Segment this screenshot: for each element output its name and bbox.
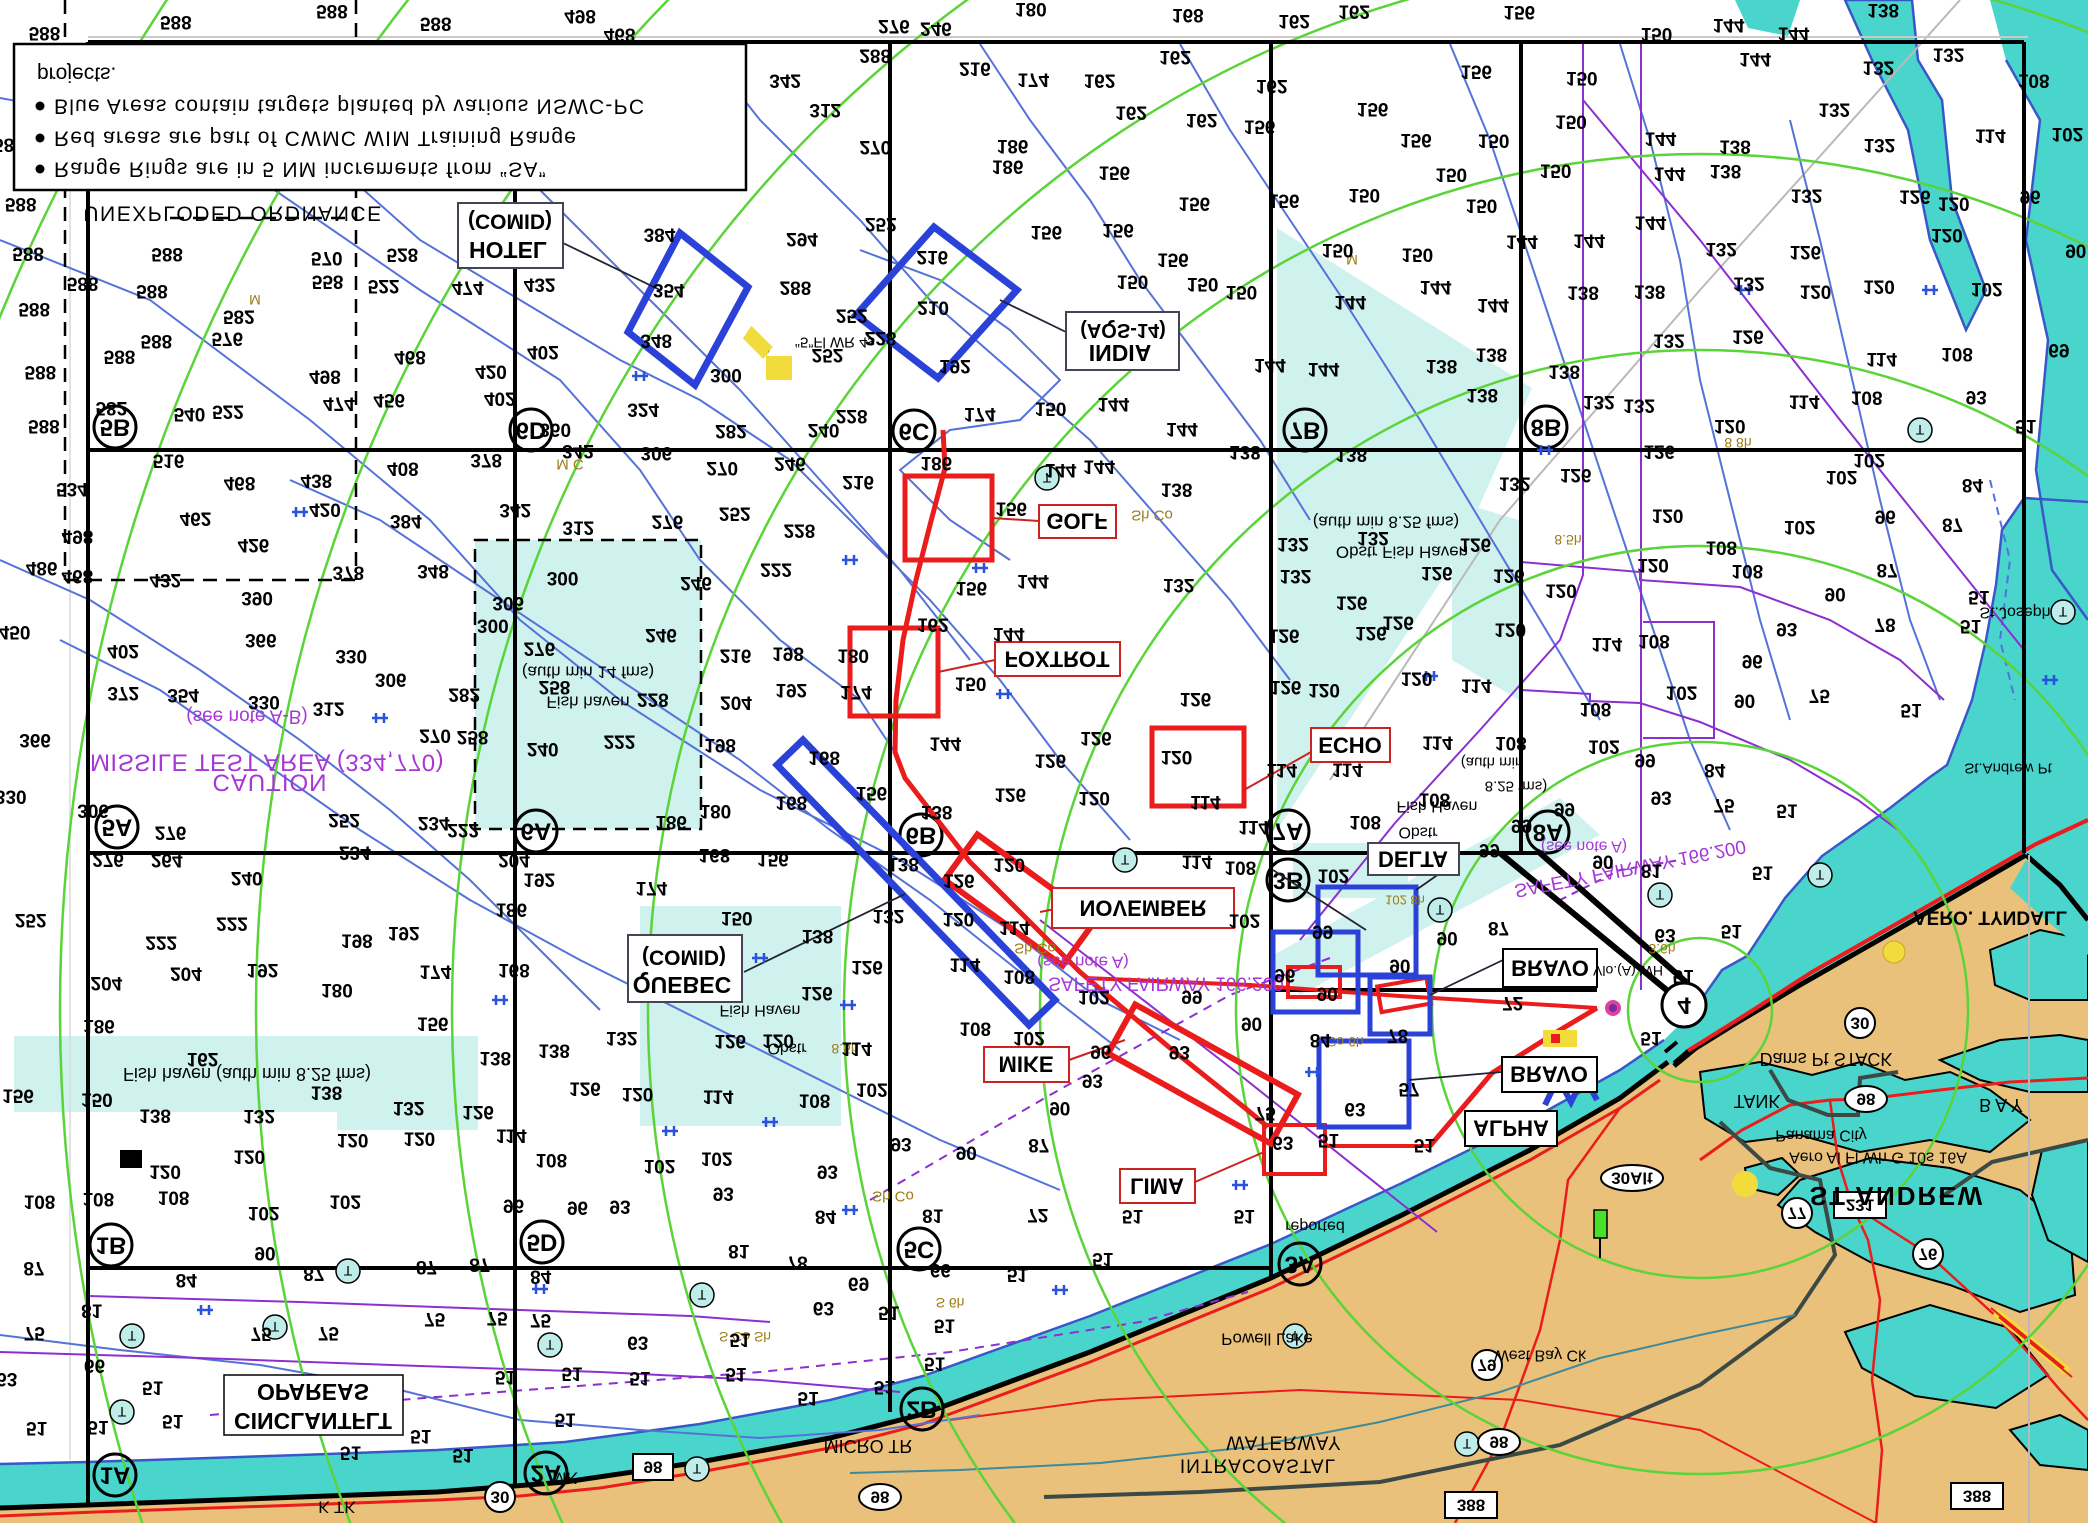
svg-text:432: 432 [149, 569, 181, 590]
svg-text:588: 588 [29, 22, 61, 43]
svg-text:174: 174 [420, 961, 452, 982]
svg-text:93: 93 [890, 1133, 911, 1154]
svg-text:456: 456 [373, 389, 405, 410]
svg-text:306: 306 [77, 800, 109, 821]
svg-text:114: 114 [999, 917, 1030, 938]
svg-text:90: 90 [1049, 1097, 1070, 1118]
svg-text:6A: 6A [521, 818, 552, 845]
svg-text:180: 180 [837, 645, 869, 666]
svg-text:WATERWAY: WATERWAY [1226, 1432, 1341, 1453]
svg-text:Co 6h: Co 6h [1326, 1034, 1363, 1050]
svg-text:90: 90 [1389, 955, 1410, 976]
svg-text:330: 330 [335, 645, 367, 666]
svg-text:138: 138 [311, 1081, 343, 1102]
svg-text:96: 96 [567, 1197, 588, 1218]
svg-text:498: 498 [309, 365, 341, 386]
svg-text:St.Andrew Pt: St.Andrew Pt [1964, 760, 2052, 777]
svg-text:168: 168 [1172, 4, 1204, 25]
svg-text:384: 384 [644, 223, 676, 244]
svg-text:366: 366 [19, 729, 51, 750]
svg-text:reported: reported [1285, 1218, 1345, 1235]
svg-text:150: 150 [1117, 271, 1149, 292]
svg-text:108: 108 [2018, 70, 2050, 91]
svg-text:93: 93 [609, 1195, 630, 1216]
svg-text:(COMID): (COMID) [642, 946, 726, 969]
svg-text:144: 144 [1045, 459, 1077, 480]
svg-text:81: 81 [922, 1204, 944, 1225]
svg-text:MICRO TR: MICRO TR [824, 1436, 913, 1456]
svg-text:75: 75 [530, 1309, 552, 1330]
svg-text:144: 144 [1166, 418, 1198, 439]
svg-text:51: 51 [162, 1410, 184, 1431]
svg-text:78: 78 [787, 1252, 808, 1273]
svg-text:198: 198 [704, 734, 736, 755]
svg-text:378: 378 [470, 449, 502, 470]
svg-text:276: 276 [155, 821, 187, 842]
svg-text:342: 342 [562, 440, 594, 461]
svg-text:St.Joseph: St.Joseph [1979, 604, 2050, 621]
svg-text:102: 102 [1229, 909, 1261, 930]
svg-text:120: 120 [993, 853, 1025, 874]
svg-text:126: 126 [1080, 727, 1112, 748]
svg-text:126: 126 [851, 956, 883, 977]
svg-text:30: 30 [491, 1488, 510, 1507]
svg-text:138: 138 [1476, 343, 1508, 364]
svg-text:84: 84 [815, 1206, 837, 1227]
svg-text:84: 84 [176, 1269, 198, 1290]
svg-text:132: 132 [1623, 394, 1655, 415]
svg-text:108: 108 [1225, 857, 1257, 878]
svg-text:Sh Co: Sh Co [1014, 940, 1056, 957]
svg-text:186: 186 [992, 155, 1024, 176]
svg-text:186: 186 [83, 1015, 115, 1036]
svg-text:156: 156 [856, 782, 888, 803]
svg-text:51: 51 [874, 1376, 896, 1397]
svg-text:276: 276 [652, 510, 684, 531]
svg-text:156: 156 [1357, 98, 1389, 119]
svg-text:75: 75 [1713, 794, 1735, 815]
svg-text:438: 438 [301, 470, 333, 491]
svg-text:126: 126 [569, 1078, 601, 1099]
svg-text:BRAVO: BRAVO [1510, 1062, 1588, 1087]
svg-text:Obstr: Obstr [1398, 824, 1438, 841]
svg-text:198: 198 [341, 929, 373, 950]
svg-text:99: 99 [1312, 920, 1333, 941]
svg-text:306: 306 [641, 442, 673, 463]
svg-text:120: 120 [149, 1161, 181, 1182]
svg-text:132: 132 [1653, 329, 1685, 350]
svg-text:570: 570 [311, 247, 343, 268]
svg-text:150: 150 [721, 907, 753, 928]
svg-text:132: 132 [1280, 565, 1312, 586]
svg-text:120: 120 [1863, 275, 1895, 296]
svg-text:MIKE: MIKE [999, 1052, 1054, 1077]
svg-text:30: 30 [1851, 1014, 1870, 1033]
svg-text:84: 84 [530, 1265, 552, 1286]
svg-text:81: 81 [728, 1240, 750, 1261]
svg-text:96: 96 [1742, 650, 1763, 671]
svg-text:120: 120 [1800, 280, 1832, 301]
svg-text:378: 378 [332, 562, 364, 583]
svg-text:96: 96 [503, 1195, 524, 1216]
svg-text:126: 126 [1421, 562, 1453, 583]
svg-text:108: 108 [158, 1187, 190, 1208]
svg-text:522: 522 [368, 275, 400, 296]
svg-text:120: 120 [1714, 415, 1746, 436]
svg-text:108: 108 [959, 1018, 991, 1039]
svg-text:156: 156 [1030, 221, 1062, 242]
svg-text:138: 138 [887, 853, 919, 874]
svg-text:51: 51 [452, 1444, 474, 1465]
svg-text:294: 294 [786, 228, 818, 249]
svg-text:192: 192 [247, 959, 279, 980]
svg-text:388: 388 [1457, 1496, 1485, 1515]
svg-text:252: 252 [719, 503, 751, 524]
svg-text:114: 114 [1789, 391, 1820, 412]
svg-text:222: 222 [216, 912, 248, 933]
svg-text:156: 156 [1268, 189, 1300, 210]
svg-text:75: 75 [24, 1322, 46, 1343]
svg-text:102: 102 [1784, 516, 1816, 537]
svg-text:588: 588 [18, 298, 50, 319]
svg-text:126: 126 [1035, 750, 1067, 771]
svg-text:87: 87 [1942, 513, 1963, 534]
svg-text:93: 93 [713, 1183, 734, 1204]
svg-text:87: 87 [23, 1257, 44, 1278]
svg-text:T: T [344, 1263, 353, 1279]
svg-text:588: 588 [28, 415, 60, 436]
svg-text:96: 96 [2020, 186, 2041, 207]
svg-text:216: 216 [842, 471, 874, 492]
svg-text:(see note A): (see note A) [1541, 838, 1627, 855]
svg-text:102: 102 [1666, 682, 1698, 703]
svg-text:132: 132 [1818, 99, 1850, 120]
svg-text:252: 252 [865, 213, 897, 234]
svg-text:222: 222 [447, 819, 479, 840]
svg-text:87: 87 [303, 1262, 324, 1283]
svg-text:150: 150 [955, 673, 987, 694]
svg-text:114: 114 [1592, 633, 1623, 654]
svg-text:HOTEL: HOTEL [469, 237, 547, 263]
svg-text:114: 114 [1461, 674, 1492, 695]
svg-text:90: 90 [254, 1242, 275, 1263]
svg-text:126: 126 [1899, 186, 1931, 207]
svg-text:156: 156 [1157, 248, 1189, 269]
svg-text:150: 150 [1555, 111, 1587, 132]
svg-text:T: T [546, 1337, 555, 1353]
svg-text:198: 198 [772, 642, 804, 663]
svg-text:102: 102 [644, 1155, 676, 1176]
svg-text:72: 72 [1027, 1204, 1048, 1225]
svg-text:228: 228 [637, 688, 669, 709]
svg-text:126: 126 [1560, 464, 1592, 485]
svg-text:Sh Co: Sh Co [1131, 507, 1173, 524]
svg-text:270: 270 [419, 725, 451, 746]
svg-text:522: 522 [212, 400, 244, 421]
svg-text:51: 51 [629, 1367, 651, 1388]
svg-text:QUEBEC: QUEBEC [633, 972, 731, 998]
svg-text:102: 102 [701, 1147, 733, 1168]
svg-text:78: 78 [1875, 614, 1896, 635]
svg-text:138: 138 [1335, 443, 1367, 464]
svg-text:240: 240 [808, 419, 840, 440]
svg-text:INTRACOASTAL: INTRACOASTAL [1180, 1455, 1336, 1476]
svg-text:192: 192 [388, 922, 420, 943]
svg-text:372: 372 [107, 682, 139, 703]
svg-text:93: 93 [1651, 787, 1672, 808]
svg-text:Blue Areas contain targets pla: Blue Areas contain targets planted by va… [54, 95, 645, 118]
svg-text:108: 108 [1941, 343, 1973, 364]
svg-text:588: 588 [104, 345, 136, 366]
svg-text:162: 162 [187, 1048, 219, 1069]
svg-text:132: 132 [393, 1097, 425, 1118]
svg-text:8.25 fms): 8.25 fms) [1485, 778, 1548, 795]
svg-text:420: 420 [475, 360, 507, 381]
svg-text:63: 63 [1272, 1132, 1293, 1153]
svg-text:258: 258 [457, 726, 489, 747]
svg-text:150: 150 [1348, 184, 1380, 205]
svg-text:63: 63 [627, 1332, 648, 1353]
svg-text:(see note A-B): (see note A-B) [186, 706, 307, 727]
svg-text:288: 288 [859, 44, 891, 65]
svg-text:Aero Al Fl Wh G 10s 16A: Aero Al Fl Wh G 10s 16A [1789, 1149, 1967, 1166]
svg-text:582: 582 [223, 305, 255, 326]
svg-text:108: 108 [24, 1191, 56, 1212]
svg-text:Obstr Fish Haven: Obstr Fish Haven [1336, 543, 1468, 562]
svg-text:516: 516 [153, 449, 185, 470]
svg-text:90: 90 [1317, 982, 1338, 1003]
svg-text:258: 258 [539, 676, 571, 697]
svg-text:216: 216 [720, 645, 752, 666]
svg-text:102: 102 [1013, 1027, 1045, 1048]
svg-text:(COMID): (COMID) [468, 210, 552, 233]
svg-text:90: 90 [1734, 690, 1755, 711]
svg-text:138: 138 [479, 1047, 511, 1068]
svg-text:240: 240 [527, 738, 559, 759]
svg-text:282: 282 [715, 420, 747, 441]
svg-text:108: 108 [1419, 789, 1451, 810]
svg-text:498: 498 [564, 5, 596, 26]
svg-text:132: 132 [1163, 574, 1195, 595]
svg-text:96: 96 [1090, 1040, 1111, 1061]
svg-text:156: 156 [1179, 193, 1211, 214]
svg-text:51: 51 [934, 1314, 956, 1335]
svg-text:204: 204 [498, 849, 530, 870]
svg-text:76: 76 [1919, 1245, 1938, 1264]
svg-text:75: 75 [1809, 684, 1831, 705]
svg-text:588: 588 [136, 280, 168, 301]
svg-text:114: 114 [1238, 816, 1269, 837]
svg-text:6C: 6C [899, 418, 930, 445]
svg-text:LIMA: LIMA [1130, 1174, 1184, 1199]
svg-text:270: 270 [859, 136, 891, 157]
svg-text:51: 51 [1900, 699, 1922, 720]
svg-text:276: 276 [524, 638, 556, 659]
svg-text:144: 144 [1654, 162, 1686, 183]
svg-text:UNEXPLODED ORDNANCE: UNEXPLODED ORDNANCE [83, 202, 382, 225]
svg-text:NOVEMBER: NOVEMBER [1079, 896, 1206, 921]
svg-text:324: 324 [627, 398, 659, 419]
svg-text:474: 474 [452, 276, 484, 297]
svg-text:120: 120 [1161, 746, 1193, 767]
svg-text:81: 81 [1641, 859, 1663, 880]
svg-text:144: 144 [1308, 358, 1340, 379]
svg-text:projects.: projects. [37, 63, 116, 86]
svg-text:162: 162 [1084, 70, 1116, 91]
svg-text:342: 342 [769, 69, 801, 90]
svg-text:8 8h: 8 8h [1724, 435, 1751, 451]
svg-text:222: 222 [604, 731, 636, 752]
svg-text:120: 120 [1938, 193, 1970, 214]
svg-text:150: 150 [81, 1089, 113, 1110]
svg-text:228: 228 [784, 519, 816, 540]
svg-text:51: 51 [1776, 800, 1798, 821]
svg-text:120: 120 [1637, 554, 1669, 575]
svg-text:93: 93 [1169, 1041, 1190, 1062]
svg-text:288: 288 [780, 276, 812, 297]
svg-text:63: 63 [1655, 924, 1676, 945]
svg-text:120: 120 [1931, 224, 1963, 245]
svg-text:162: 162 [917, 614, 949, 635]
svg-text:144: 144 [1017, 570, 1049, 591]
svg-text:150: 150 [1435, 164, 1467, 185]
svg-text:132: 132 [1499, 472, 1531, 493]
svg-text:6B: 6B [906, 822, 937, 849]
svg-text:162: 162 [1256, 75, 1288, 96]
svg-text:234: 234 [418, 812, 450, 833]
svg-text:468: 468 [62, 565, 94, 586]
svg-text:306: 306 [375, 669, 407, 690]
svg-text:108: 108 [799, 1089, 831, 1110]
svg-text:99: 99 [1634, 749, 1655, 770]
svg-text:87: 87 [1028, 1134, 1049, 1155]
svg-text:51: 51 [1968, 586, 1990, 607]
svg-text:75: 75 [424, 1308, 446, 1329]
svg-text:51: 51 [1752, 862, 1774, 883]
svg-text:99: 99 [1511, 815, 1532, 836]
svg-text:(AQS-14): (AQS-14) [1080, 319, 1166, 341]
svg-text:144: 144 [1334, 291, 1366, 312]
svg-text:B A Y: B A Y [1979, 1095, 2023, 1115]
svg-text:300: 300 [710, 364, 742, 385]
svg-text:534: 534 [56, 478, 88, 499]
svg-text:132: 132 [1277, 533, 1309, 554]
svg-text:ECHO: ECHO [1318, 733, 1382, 758]
svg-text:FOXTROT: FOXTROT [1004, 647, 1110, 672]
svg-text:432: 432 [524, 274, 556, 295]
svg-text:93: 93 [1082, 1070, 1103, 1091]
svg-text:AERO. TYNDALL: AERO. TYNDALL [1913, 907, 2068, 928]
svg-text:138: 138 [139, 1104, 171, 1125]
svg-text:180: 180 [1015, 0, 1047, 19]
svg-text:ALPHA: ALPHA [1473, 1116, 1549, 1141]
svg-text:468: 468 [394, 346, 426, 367]
svg-text:174: 174 [636, 877, 668, 898]
svg-text:306: 306 [492, 592, 524, 613]
svg-text:Dams Pt STACK: Dams Pt STACK [1760, 1049, 1893, 1069]
svg-text:99: 99 [1479, 839, 1500, 860]
svg-text:102: 102 [248, 1202, 280, 1223]
svg-text:204: 204 [170, 963, 202, 984]
svg-text:348: 348 [417, 560, 449, 581]
svg-text:348: 348 [640, 329, 672, 350]
svg-text:132: 132 [1357, 527, 1389, 548]
svg-text:108: 108 [1495, 732, 1527, 753]
svg-text:DELTA: DELTA [1378, 847, 1448, 872]
svg-text:468: 468 [224, 472, 256, 493]
svg-text:51: 51 [797, 1387, 819, 1408]
svg-text:144: 144 [1420, 276, 1452, 297]
svg-text:102 8h: 102 8h [1385, 893, 1425, 908]
svg-text:4: 4 [1677, 992, 1691, 1019]
svg-text:162: 162 [1115, 102, 1147, 123]
svg-text:99: 99 [1554, 798, 1575, 819]
svg-text:222: 222 [145, 931, 177, 952]
svg-text:144: 144 [1254, 354, 1286, 375]
svg-text:276: 276 [878, 15, 910, 36]
svg-text:150: 150 [1641, 23, 1673, 44]
svg-text:Fish haven (auth min 8.25 fms): Fish haven (auth min 8.25 fms) [123, 1064, 371, 1084]
svg-text:186: 186 [655, 811, 687, 832]
svg-text:63: 63 [813, 1297, 834, 1318]
svg-text:51: 51 [1092, 1248, 1114, 1269]
svg-text:78: 78 [1387, 1025, 1408, 1046]
svg-text:84: 84 [1310, 1029, 1332, 1050]
svg-text:114: 114 [841, 1038, 872, 1059]
svg-text:156: 156 [2, 1085, 34, 1106]
svg-text:132: 132 [243, 1105, 275, 1126]
svg-text:126: 126 [801, 982, 833, 1003]
svg-text:51: 51 [1007, 1264, 1029, 1285]
svg-text:90: 90 [2065, 239, 2086, 260]
svg-text:51: 51 [26, 1417, 48, 1438]
svg-text:300: 300 [547, 567, 579, 588]
svg-text:588: 588 [151, 243, 183, 264]
svg-text:66: 66 [84, 1354, 105, 1375]
svg-text:90: 90 [1592, 851, 1613, 872]
svg-text:T: T [698, 1287, 707, 1303]
svg-text:98: 98 [871, 1488, 890, 1507]
svg-text:132: 132 [1791, 184, 1823, 205]
svg-text:156: 156 [995, 497, 1027, 518]
svg-text:138: 138 [538, 1039, 570, 1060]
svg-text:51: 51 [554, 1409, 576, 1430]
svg-text:144: 144 [1645, 127, 1677, 148]
svg-text:126: 126 [462, 1101, 494, 1122]
svg-text:210: 210 [917, 296, 949, 317]
svg-text:144: 144 [1506, 231, 1538, 252]
svg-text:120: 120 [233, 1145, 265, 1166]
svg-text:114: 114 [1332, 759, 1363, 780]
svg-text:120: 120 [1494, 619, 1526, 640]
svg-text:T: T [693, 1461, 702, 1477]
svg-text:69: 69 [2048, 339, 2069, 360]
svg-text:144: 144 [1083, 456, 1115, 477]
svg-text:420: 420 [309, 499, 341, 520]
svg-text:126: 126 [1180, 688, 1212, 709]
svg-text:126: 126 [1382, 612, 1414, 633]
svg-text:240: 240 [231, 867, 263, 888]
svg-text:63: 63 [0, 1368, 17, 1389]
svg-text:96: 96 [1274, 964, 1295, 985]
svg-text:102: 102 [1078, 986, 1110, 1007]
svg-text:51: 51 [1672, 965, 1694, 986]
svg-text:588: 588 [25, 361, 57, 382]
svg-text:Vlo.(A) WH: Vlo.(A) WH [1593, 963, 1663, 979]
svg-text:120: 120 [337, 1129, 369, 1150]
svg-text:51: 51 [878, 1302, 900, 1323]
svg-text:108: 108 [1003, 965, 1035, 986]
